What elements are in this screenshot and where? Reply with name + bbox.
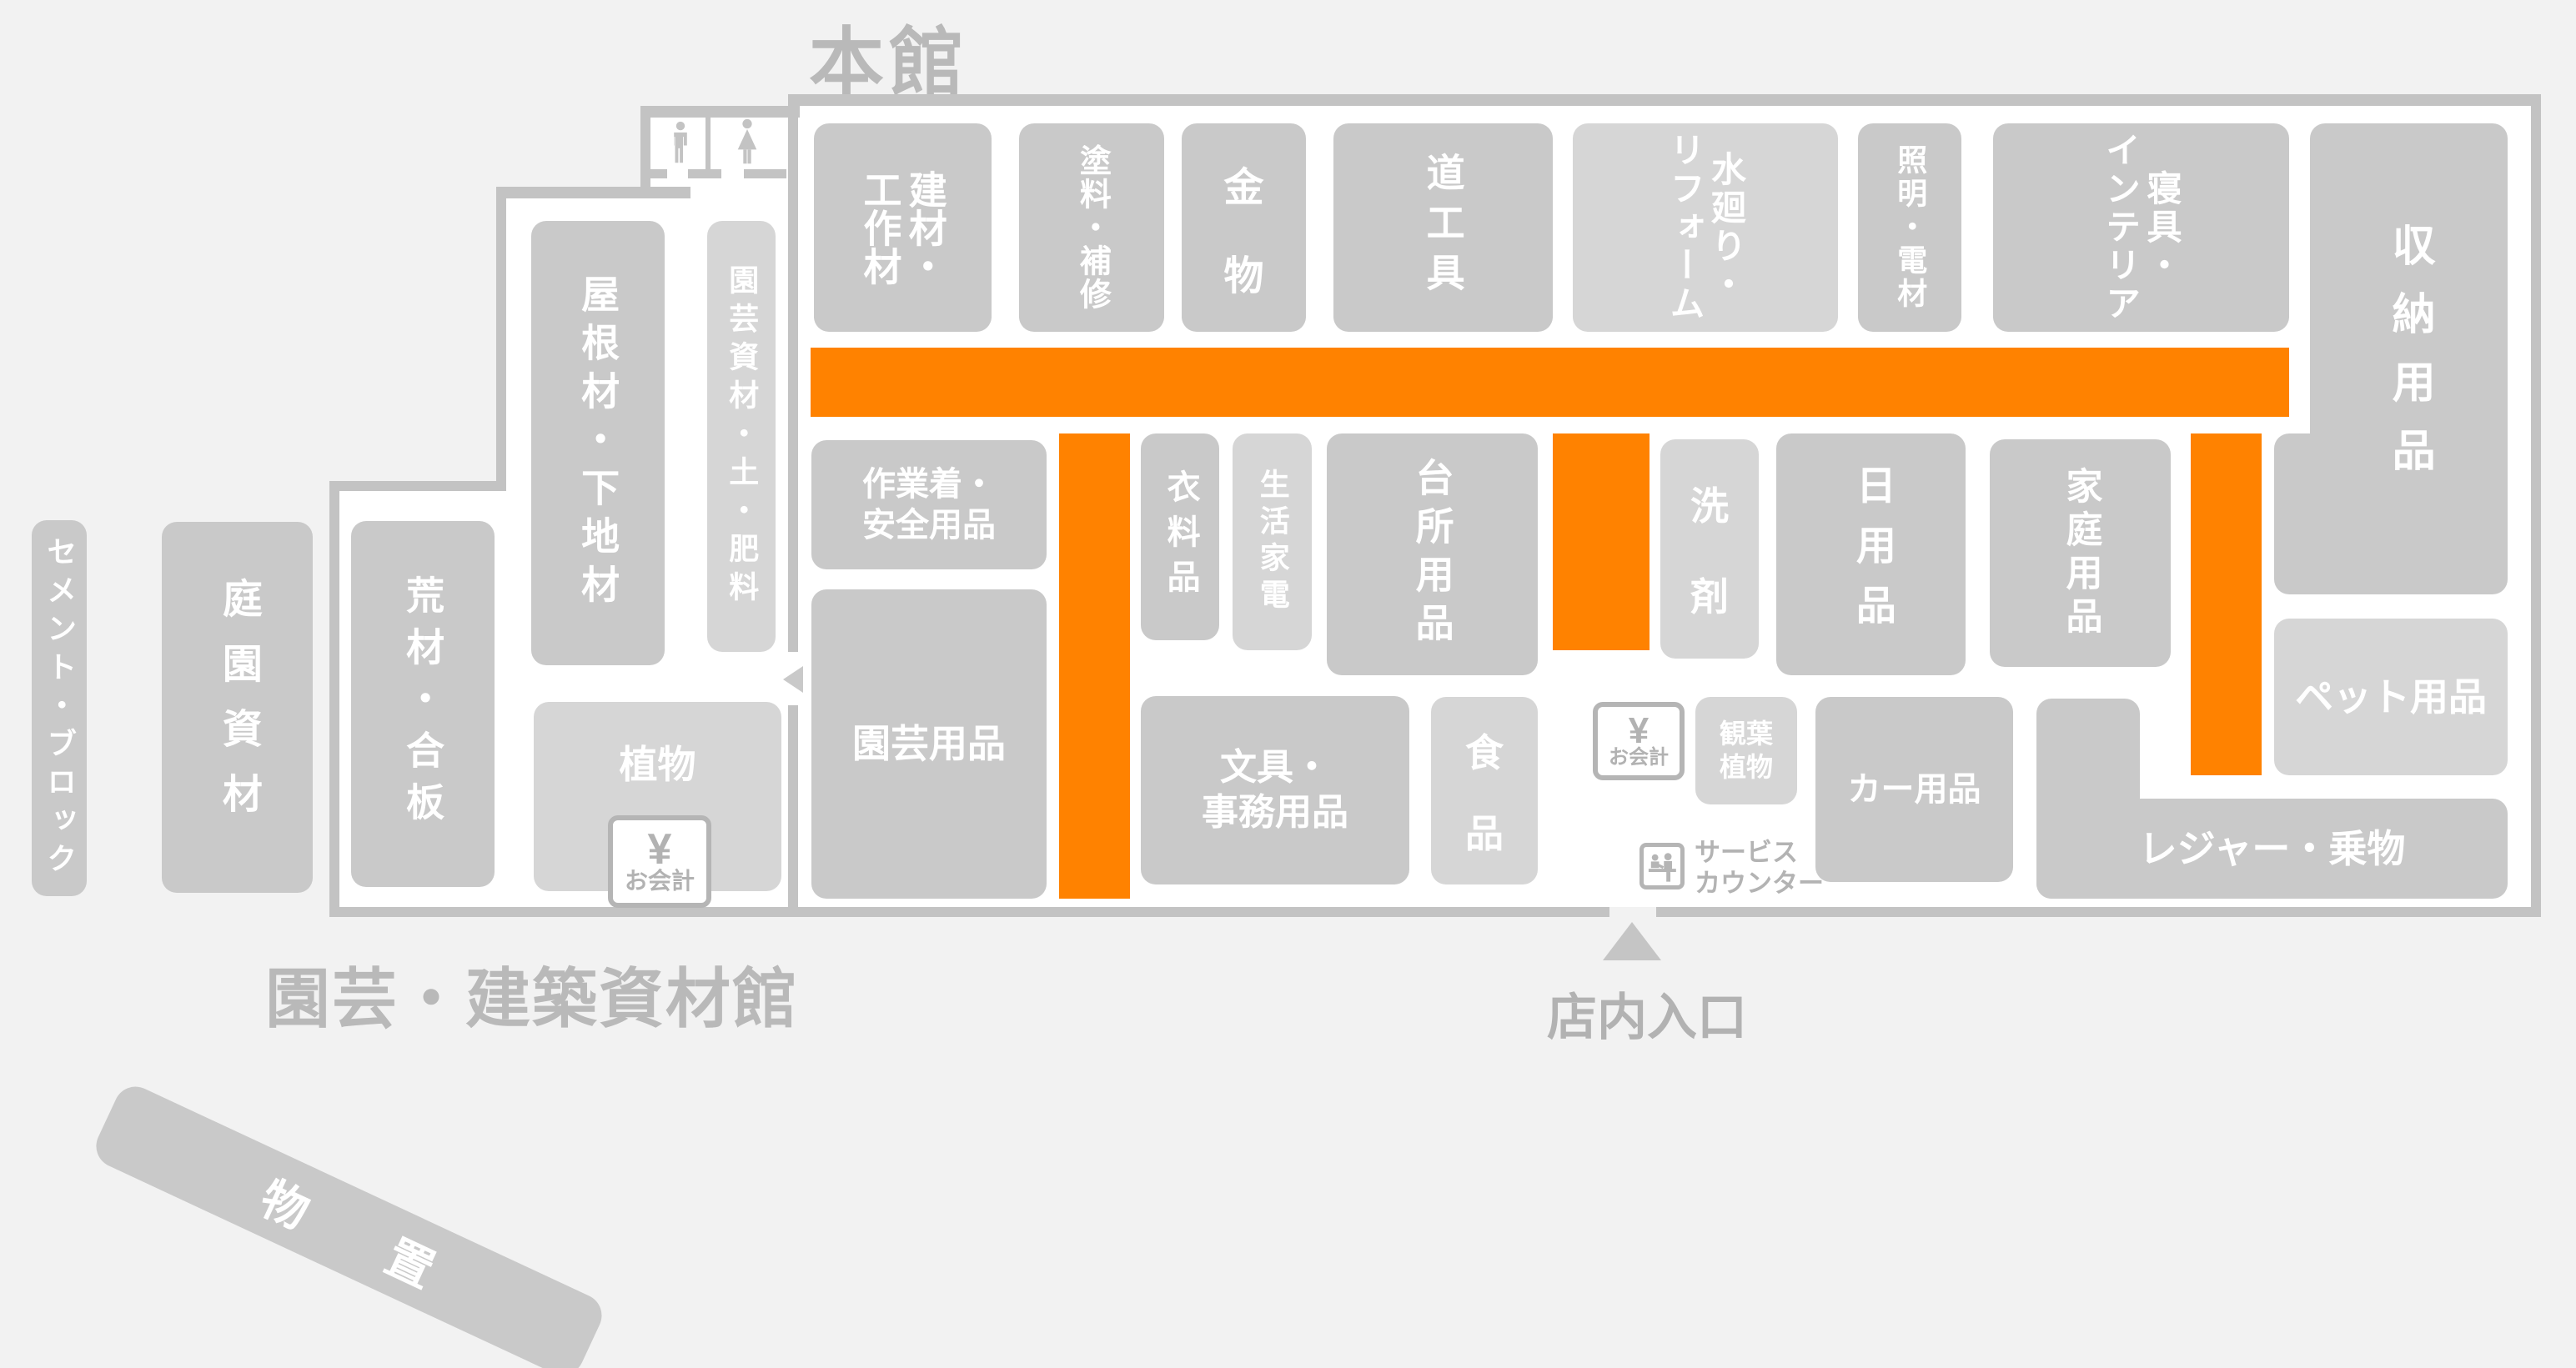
yard-cement-block: セメント・ブロック — [32, 520, 87, 896]
yard-garden-landscaping: 庭園資材 — [162, 522, 313, 893]
aisle-left — [1059, 433, 1130, 899]
dept-leisure-vehicles: レジャー・乗物 — [2036, 799, 2508, 899]
wall-segment — [329, 491, 339, 917]
dept-detergent-label: 洗剤 — [1660, 439, 1759, 659]
dept-tools-label: 道工具 — [1420, 153, 1465, 303]
dept-kitchen-goods-label: 台所用品 — [1409, 458, 1454, 651]
dept-gardening-goods-label: 園芸用品 — [852, 720, 1006, 767]
dept-pet-goods: ペット用品 — [2274, 619, 2508, 775]
yard-garden-landscaping-label: 庭園資材 — [213, 578, 261, 838]
service-counter-icon — [1640, 843, 1685, 889]
wall-segment — [788, 705, 798, 907]
dept-hardware: 金物 — [1182, 123, 1306, 332]
aisle-center — [1553, 433, 1650, 650]
dept-car-goods-label: カー用品 — [1848, 769, 1981, 810]
dept-lighting-electrical-label: 照明・電材 — [1892, 144, 1927, 311]
wall-segment — [744, 169, 786, 178]
dept-pet-goods-label: ペット用品 — [2295, 674, 2487, 720]
dept-food-label: 食品 — [1431, 697, 1538, 884]
dept-kitchen-goods: 台所用品 — [1327, 433, 1538, 675]
aisle-main-horizontal — [811, 348, 2289, 417]
restroom-man-icon — [670, 118, 691, 168]
yard-storage-shed: 物置 — [89, 1080, 609, 1368]
dept-car-goods: カー用品 — [1815, 697, 2013, 882]
entrance-arrow-icon — [1603, 922, 1661, 960]
checkout-annex: ¥お会計 — [608, 815, 711, 908]
service-counter-label: サービス カウンター — [1695, 837, 1824, 899]
dept-plumbing-reform-label: 水廻り・ リフォーム — [1664, 132, 1746, 323]
dept-plants-label: 植物 — [620, 741, 696, 788]
dept-paint-repair: 塗料・補修 — [1019, 123, 1164, 332]
dept-foliage-plants-label: 観葉 植物 — [1720, 718, 1773, 783]
dept-tools: 道工具 — [1333, 123, 1553, 332]
dept-food: 食品 — [1431, 697, 1538, 884]
wall-segment — [688, 169, 721, 178]
dept-clothing-label: 衣料品 — [1160, 469, 1199, 604]
entrance-label: 店内入口 — [1526, 977, 1768, 1050]
wall-segment — [706, 118, 711, 171]
wall-segment — [329, 481, 506, 491]
dept-home-appliances: 生活家電 — [1233, 433, 1312, 650]
store-floor-map: 本館 園芸・建築資材館 店内入口 建材・ 工作材塗料・補修金物道工具水廻り・ リ… — [0, 0, 2576, 1368]
checkout-main: ¥お会計 — [1593, 702, 1685, 780]
wall-segment — [496, 198, 506, 481]
dept-bedding-interior: 寝具・ インテリア — [1993, 123, 2289, 332]
checkout-main-label: お会計 — [1609, 748, 1669, 768]
dept-clothing: 衣料品 — [1141, 433, 1219, 640]
dept-leisure-vehicles-label: レジャー・乗物 — [2139, 825, 2406, 872]
wall-segment — [496, 187, 690, 198]
dept-workwear-safety-label: 作業着・ 安全用品 — [862, 464, 996, 546]
wall-segment — [650, 169, 667, 178]
dept-garden-materials-soil-label: 園芸資材・土・肥料 — [724, 264, 759, 609]
dept-building-materials-label: 建材・ 工作材 — [857, 170, 948, 285]
dept-roofing-base-materials: 屋根材・下地材 — [531, 221, 665, 665]
wall-segment — [2531, 94, 2541, 917]
wall-segment — [329, 907, 788, 917]
dept-household-goods-label: 家庭用品 — [2059, 467, 2102, 640]
checkout-main-yen-icon: ¥ — [1629, 714, 1649, 748]
dept-stationery-office-label: 文具・ 事務用品 — [1202, 745, 1348, 834]
yard-storage-shed-label: 物置 — [89, 1080, 609, 1368]
dept-rough-lumber-plywood-label: 荒材・合板 — [400, 575, 445, 834]
dept-foliage-plants: 観葉 植物 — [1695, 697, 1797, 804]
dept-storage-goods-label: 収納用品 — [2383, 223, 2434, 496]
checkout-annex-label: お会計 — [625, 869, 695, 893]
dept-garden-materials-soil: 園芸資材・土・肥料 — [707, 221, 776, 652]
dept-gardening-goods: 園芸用品 — [811, 589, 1047, 899]
dept-household-goods: 家庭用品 — [1990, 439, 2171, 667]
dept-roofing-base-materials-label: 屋根材・下地材 — [575, 274, 620, 613]
wall-segment — [1656, 907, 2541, 917]
aisle-right — [2191, 433, 2262, 775]
checkout-annex-yen-icon: ¥ — [648, 830, 672, 869]
dept-building-materials: 建材・ 工作材 — [814, 123, 992, 332]
wall-segment — [788, 907, 1609, 917]
dept-lighting-electrical: 照明・電材 — [1858, 123, 1961, 332]
dept-daily-goods: 日用品 — [1776, 433, 1966, 675]
dept-stationery-office: 文具・ 事務用品 — [1141, 696, 1409, 884]
dept-detergent: 洗剤 — [1660, 439, 1759, 659]
dept-storage-goods-ext — [2274, 433, 2374, 594]
wall-segment — [640, 106, 800, 118]
title-annex-building: 園芸・建築資材館 — [265, 947, 799, 1040]
dept-plumbing-reform: 水廻り・ リフォーム — [1573, 123, 1838, 332]
dept-hardware-label: 金物 — [1182, 123, 1306, 332]
dept-bedding-interior-label: 寝具・ インテリア — [2100, 132, 2182, 323]
dept-paint-repair-label: 塗料・補修 — [1073, 144, 1111, 311]
dept-workwear-safety: 作業着・ 安全用品 — [811, 440, 1047, 569]
wall-segment — [788, 94, 2541, 106]
dept-rough-lumber-plywood: 荒材・合板 — [351, 521, 495, 887]
dept-daily-goods-label: 日用品 — [1847, 464, 1895, 644]
wall-segment — [788, 106, 798, 652]
dept-home-appliances-label: 生活家電 — [1254, 469, 1289, 615]
passage-arrow-icon — [783, 666, 803, 693]
restroom-woman-icon — [735, 117, 760, 168]
yard-cement-block-label: セメント・ブロック — [42, 536, 77, 881]
